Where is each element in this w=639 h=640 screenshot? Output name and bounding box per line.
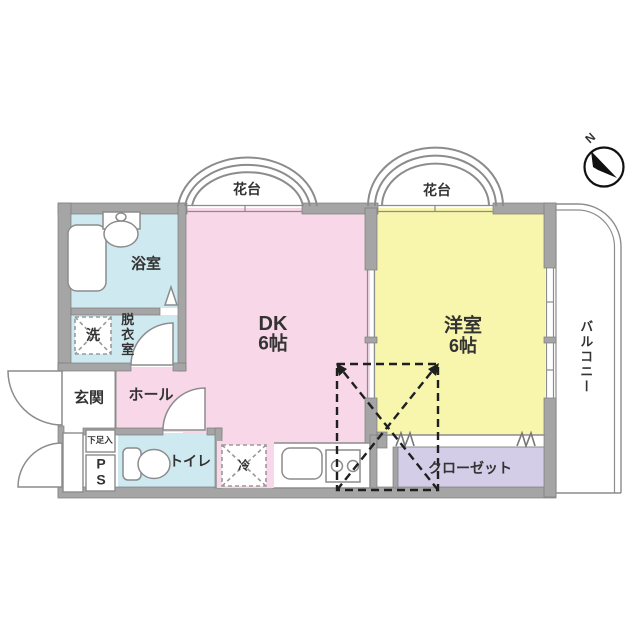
basin-tap <box>116 213 126 221</box>
bathtub <box>68 225 106 291</box>
western-room-size-label: 6帖 <box>449 336 477 356</box>
western-room-label: 洋室 <box>444 315 482 336</box>
entrance-door-swing <box>8 371 62 425</box>
outside-storage-door-swing <box>18 443 62 487</box>
side-storage-box <box>63 433 83 492</box>
refrigerator-label: 冷 <box>238 459 250 472</box>
wall-closet-left <box>393 447 398 488</box>
toilet-label: トイレ <box>169 454 211 470</box>
closet-label: クローゼット <box>428 461 512 477</box>
wall-dressing-hall-right <box>173 363 186 371</box>
compass-icon <box>585 148 624 187</box>
floor-plan: 花台 花台 DK 6帖 洋室 6帖 浴室 脱衣室 洗 玄関 ホール 下足入 PS… <box>0 0 639 640</box>
floor-plan-drawing <box>0 0 639 640</box>
washer-label: 洗 <box>86 328 100 344</box>
flower-stand-arches <box>178 148 503 206</box>
entrance-label: 玄関 <box>74 391 104 408</box>
wall-bath-dressing <box>71 308 160 315</box>
kitchen-sink <box>282 448 322 479</box>
wall-bath-right <box>178 203 186 371</box>
wall-dressing-hall-left <box>58 363 131 371</box>
wall-right-1 <box>544 203 556 268</box>
hall-label: ホール <box>128 388 173 405</box>
flower-stand-left-label: 花台 <box>233 182 261 198</box>
toilet-bowl <box>138 450 170 479</box>
bathroom-label: 浴室 <box>131 257 161 274</box>
wash-basin <box>104 221 138 247</box>
shoe-box-label: 下足入 <box>87 436 113 446</box>
wall-right-3 <box>544 398 556 497</box>
pipe-space-label: PS <box>95 456 107 487</box>
dk-label: DK <box>259 313 288 335</box>
flower-stand-right-label: 花台 <box>423 183 451 199</box>
wall-right-2 <box>544 337 556 343</box>
wall-partition-1 <box>365 208 377 270</box>
dk-size-label: 6帖 <box>258 333 288 354</box>
balcony-label: バルコニー <box>578 320 593 395</box>
wall-partition-2 <box>365 337 377 343</box>
dressing-room-label: 脱衣室 <box>119 313 134 358</box>
